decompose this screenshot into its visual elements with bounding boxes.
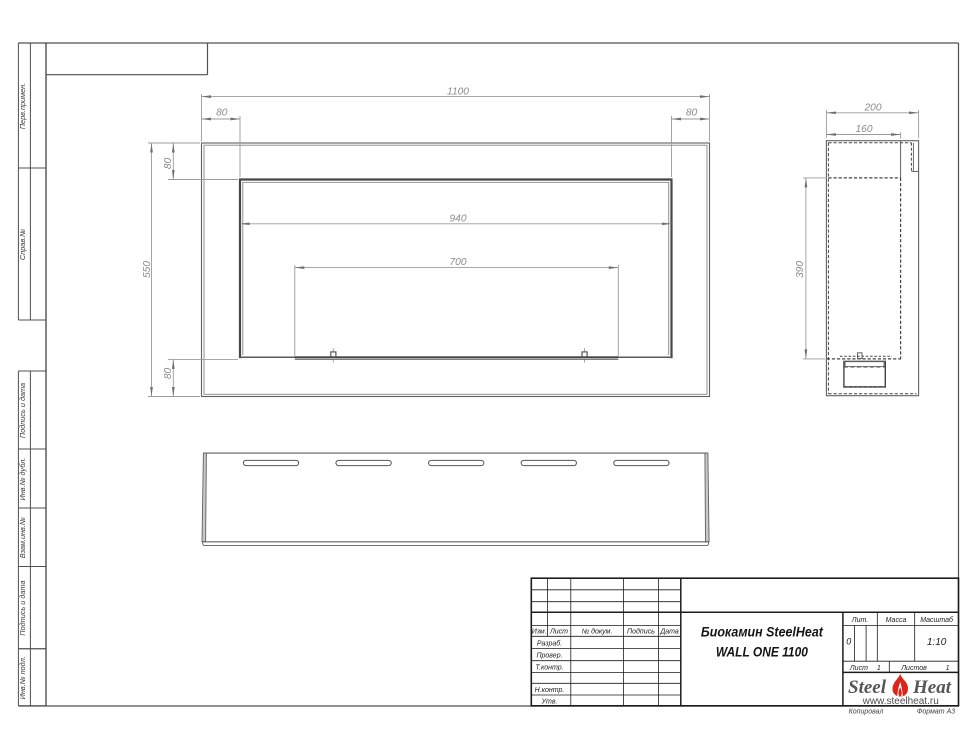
svg-text:Т.контр.: Т.контр. — [535, 665, 563, 672]
svg-text:Копировал: Копировал — [849, 709, 884, 716]
svg-text:1: 1 — [877, 665, 881, 672]
svg-text:№ докум.: № докум. — [582, 627, 613, 635]
svg-text:Справ.№: Справ.№ — [18, 229, 27, 260]
svg-text:1100: 1100 — [447, 87, 469, 98]
svg-text:Листов: Листов — [900, 665, 927, 672]
svg-text:0: 0 — [846, 636, 851, 646]
svg-text:Подпись и дата: Подпись и дата — [18, 580, 27, 635]
svg-text:Взам.инв.№: Взам.инв.№ — [18, 517, 27, 558]
svg-text:Н.контр.: Н.контр. — [535, 687, 565, 694]
svg-text:www.steelheat.ru: www.steelheat.ru — [862, 696, 939, 707]
svg-text:80: 80 — [686, 108, 698, 119]
svg-text:Дата: Дата — [659, 628, 679, 635]
svg-text:200: 200 — [864, 102, 882, 113]
svg-text:940: 940 — [450, 213, 467, 224]
svg-text:Провер.: Провер. — [536, 653, 562, 660]
svg-text:80: 80 — [163, 158, 174, 170]
svg-text:550: 550 — [142, 261, 153, 278]
svg-text:80: 80 — [216, 108, 228, 119]
svg-text:Формат А3: Формат А3 — [917, 709, 955, 716]
svg-text:Лит.: Лит. — [851, 617, 868, 624]
svg-text:Инв.№ дубл.: Инв.№ дубл. — [18, 458, 27, 501]
svg-text:1:10: 1:10 — [927, 637, 947, 648]
svg-text:Биокамин SteelHeat: Биокамин SteelHeat — [701, 625, 823, 640]
svg-text:Подпись и дата: Подпись и дата — [18, 383, 27, 438]
svg-text:700: 700 — [450, 257, 467, 268]
svg-text:Лист: Лист — [849, 665, 868, 672]
svg-text:WALL ONE 1100: WALL ONE 1100 — [716, 645, 808, 660]
svg-text:Масса: Масса — [886, 617, 907, 624]
svg-text:160: 160 — [856, 124, 873, 135]
svg-text:390: 390 — [795, 261, 806, 278]
svg-text:Утв.: Утв. — [541, 698, 558, 705]
svg-text:Подпись: Подпись — [627, 627, 655, 635]
svg-text:Лист: Лист — [549, 628, 568, 635]
svg-text:Масштаб: Масштаб — [920, 616, 954, 624]
svg-text:80: 80 — [163, 368, 174, 380]
svg-text:Инв.№ подл.: Инв.№ подл. — [18, 656, 27, 699]
svg-text:1: 1 — [946, 665, 950, 672]
svg-text:Перв.примен.: Перв.примен. — [18, 83, 27, 129]
svg-text:Разраб.: Разраб. — [537, 640, 562, 648]
svg-text:Изм.: Изм. — [532, 628, 547, 635]
